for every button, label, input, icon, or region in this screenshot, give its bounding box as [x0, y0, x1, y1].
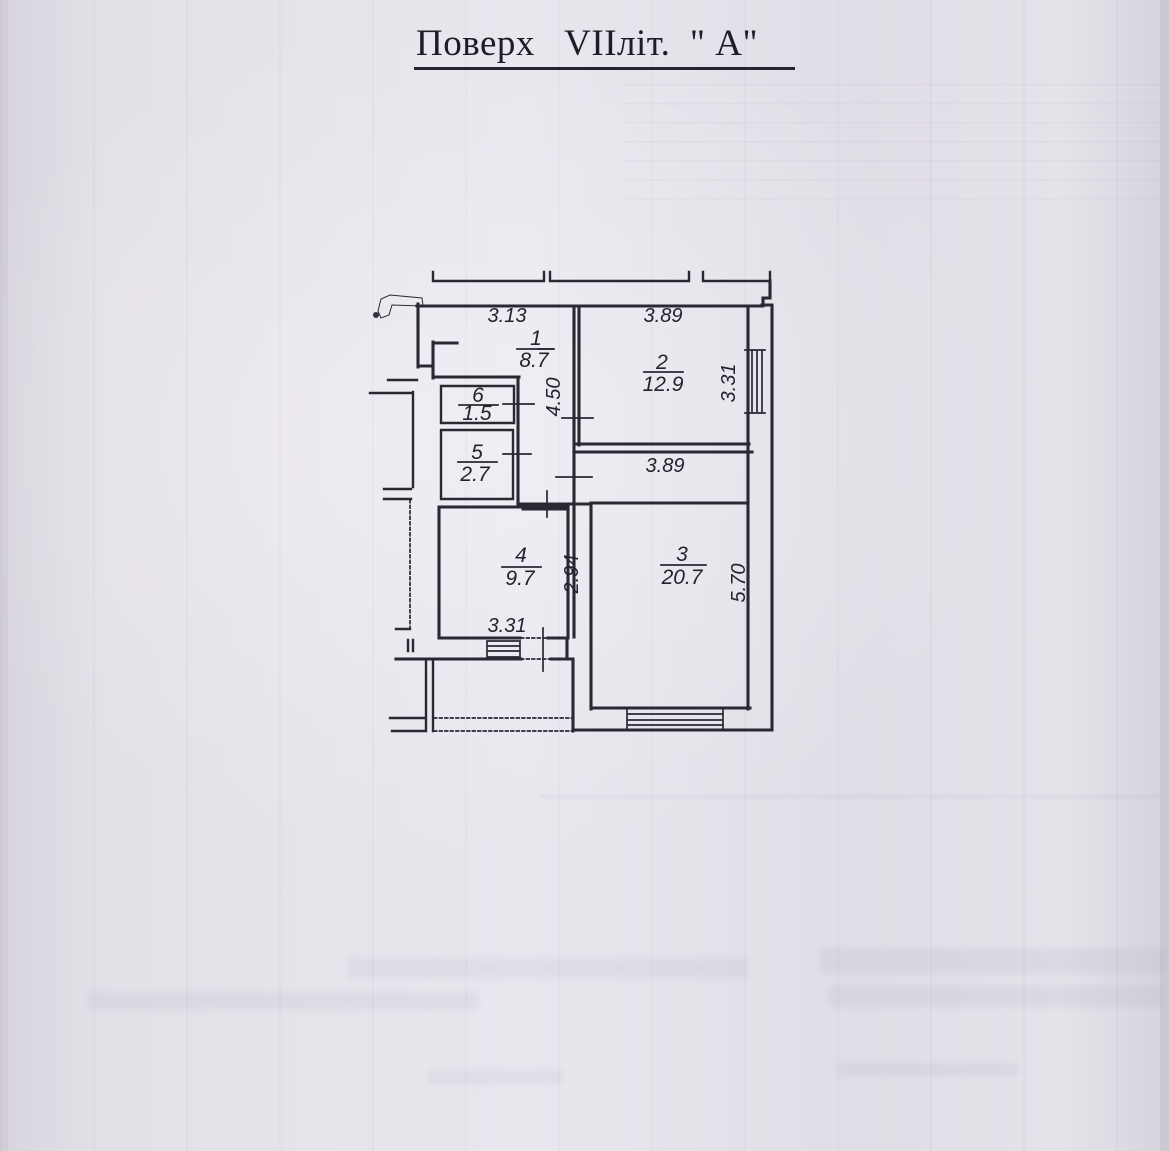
dim-room2-width: 3.89	[644, 305, 683, 327]
room4-number: 4	[515, 544, 527, 567]
interior-walls	[433, 306, 752, 709]
room3-window	[627, 709, 723, 730]
room4-balcony-window	[487, 641, 520, 657]
dim-hall-length: 4.50	[543, 378, 565, 417]
room1-area: 8.7	[519, 349, 550, 372]
room4-area: 9.7	[505, 567, 536, 590]
room2-number: 2	[655, 351, 668, 374]
room3-number: 3	[676, 543, 688, 566]
floorplan-drawing: 3.13 3.89 4.50 3.31 3.89 2.94 5.70 3.31 …	[0, 0, 1169, 1151]
room6-area: 1.5	[462, 402, 492, 425]
room5-number: 5	[471, 441, 483, 464]
dim-room1-width: 3.13	[488, 305, 527, 327]
dim-room4-depth: 2.94	[561, 555, 583, 595]
neighbor-walls	[370, 380, 417, 629]
room1-number: 1	[530, 327, 542, 350]
room3-area: 20.7	[661, 566, 704, 589]
dim-room3-width: 3.89	[646, 455, 685, 477]
room2-area: 12.9	[643, 373, 684, 396]
dim-room2-window: 3.31	[718, 364, 740, 403]
room5-area: 2.7	[459, 463, 491, 486]
scan-ghost-line	[540, 795, 1162, 798]
ink-smudge-dot	[373, 312, 379, 318]
scanned-floorplan-page: { "title": "Поверх VIIліт. \" А\"", "flo…	[0, 0, 1169, 1151]
top-dimension-brackets	[433, 272, 770, 281]
dim-room3-depth: 5.70	[728, 564, 750, 603]
dim-room4-width: 3.31	[488, 615, 527, 637]
balcony-walls	[390, 638, 573, 731]
